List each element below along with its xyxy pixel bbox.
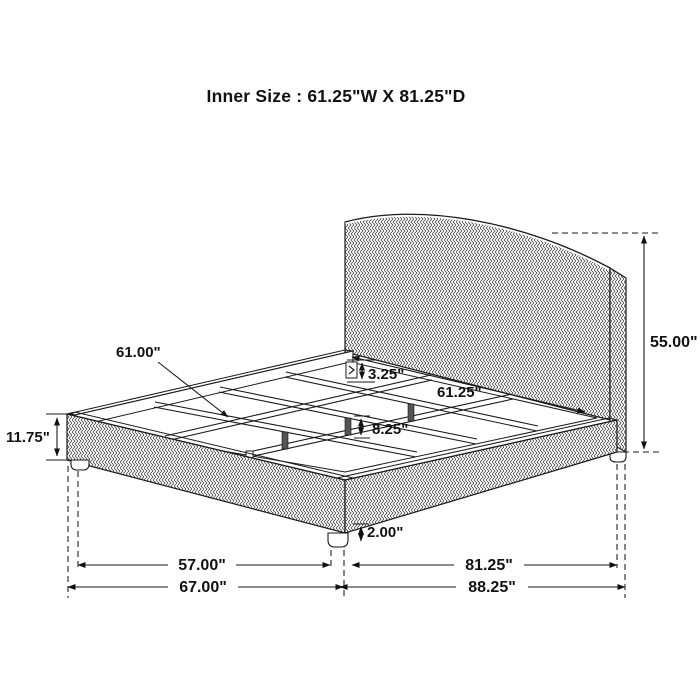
dim-slat-length-label: 61.00" xyxy=(116,344,161,361)
front-foot xyxy=(328,533,348,547)
dim-overall-width-label: 67.00" xyxy=(179,579,227,596)
left-foot xyxy=(71,460,89,470)
dim-inner-width-label: 61.25" xyxy=(437,384,482,401)
dim-overall-depth-label: 88.25" xyxy=(468,579,516,596)
diagram-canvas: Inner Size : 61.25"W X 81.25"D xyxy=(0,0,700,700)
dim-headboard-height-label: 55.00" xyxy=(650,334,698,351)
dim-overall-width: 67.00" xyxy=(68,578,343,596)
center-leg-2 xyxy=(345,418,351,435)
bed-dimension-diagram: Inner Size : 61.25"W X 81.25"D xyxy=(0,0,700,700)
center-leg-3 xyxy=(408,404,414,421)
bed-illustration xyxy=(67,214,626,547)
diagram-title: Inner Size : 61.25"W X 81.25"D xyxy=(207,86,466,106)
center-leg-1 xyxy=(282,432,288,449)
dim-foot-height-label: 2.00" xyxy=(367,524,403,541)
dim-depth-between-legs: 81.25" xyxy=(352,556,617,574)
dim-footboard-height-label: 11.75" xyxy=(6,429,50,446)
rail-bracket xyxy=(346,362,357,378)
dim-width-between-legs: 57.00" xyxy=(78,556,330,574)
dim-depth-between-legs-label: 81.25" xyxy=(465,557,513,574)
dim-footboard-height: 11.75" xyxy=(6,414,74,460)
dim-width-between-legs-label: 57.00" xyxy=(178,557,226,574)
dim-leg-height-label: 8.25" xyxy=(372,421,408,438)
dim-overall-depth: 88.25" xyxy=(340,578,625,596)
